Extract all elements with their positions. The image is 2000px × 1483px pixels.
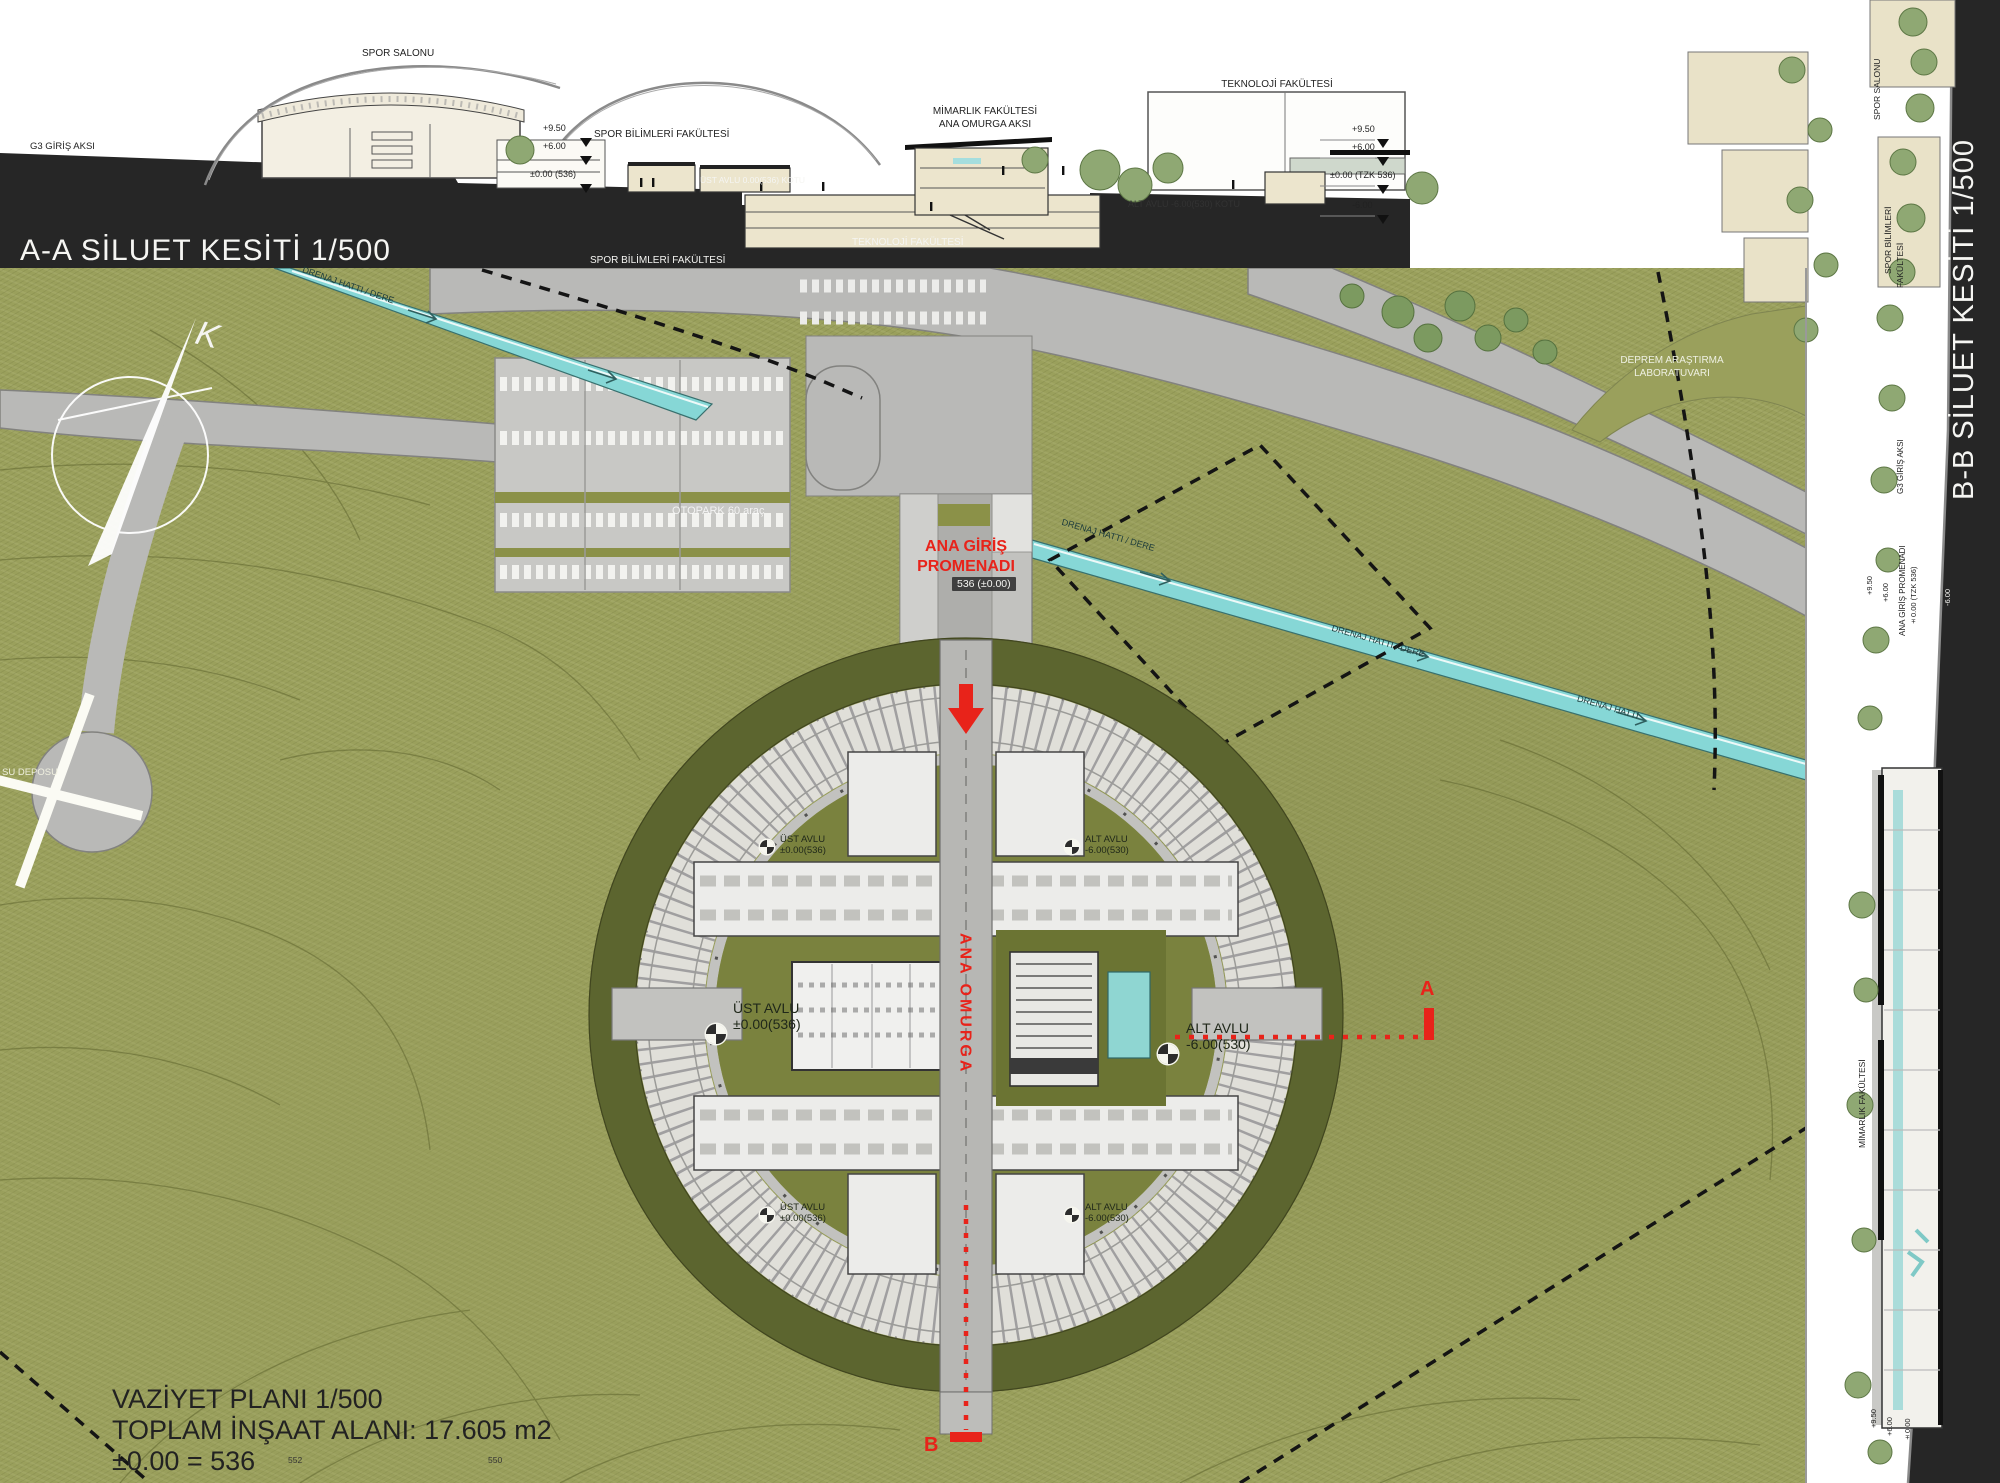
plan-teknoloji-label: TEKNOLOJİ FAKÜLTESİ [852, 237, 964, 249]
spor-salonu-label: SPOR SALONU [362, 48, 434, 60]
b-spor-salonu-label: SPOR SALONU [1873, 20, 1883, 120]
drawing-canvas [0, 0, 2000, 1483]
level-right-000: ±0.00 (TZK 536) [1330, 170, 1395, 180]
architectural-sheet: G3 GİRİŞ AKSI SPOR SALONU SPOR BİLİMLERİ… [0, 0, 2000, 1483]
courtyard-name: ÜST AVLU [780, 1202, 826, 1213]
su-deposu-label: SU DEPOSU [2, 768, 58, 779]
level-left-000: ±0.00 (536) [530, 169, 576, 179]
planter-strip [938, 504, 990, 526]
road-turnaround [806, 366, 880, 490]
courtyard-level: -6.00(530) [1085, 1213, 1129, 1224]
courtyard-label-lower-left: ÜST AVLU ±0.00(536) [780, 1202, 826, 1224]
level-icon [760, 1208, 774, 1222]
b-bottom-level-950: +9.50 [1870, 1382, 1879, 1428]
teknoloji-label: TEKNOLOJİ FAKÜLTESİ [1197, 79, 1357, 91]
ana-giris-label-2: PROMENADI [908, 558, 1024, 576]
b-tzk-label: ±0.00 (TZK 536) [1910, 516, 1919, 626]
deprem-label-1: DEPREM ARAŞTIRMA [1597, 355, 1747, 367]
courtyard-label-mid-left: ÜST AVLU ±0.00(536) [733, 1000, 801, 1032]
section-marker-b: B [924, 1434, 938, 1457]
level-icon [1065, 1208, 1079, 1222]
b-level-950: +9.50 [1866, 545, 1875, 595]
courtyard-level: -6.00(530) [1186, 1036, 1251, 1052]
b-bottom-level-600: +6.00 [1886, 1390, 1895, 1436]
ana-giris-level-badge: 536 (±0.00) [952, 577, 1016, 591]
section-b-title: B-B SİLUET KESİTİ 1/500 [1948, 140, 1981, 500]
b-spor-bilimleri-label-1: SPOR BİLİMLERİ [1884, 164, 1894, 274]
section-a-title: A-A SİLUET KESİTİ 1/500 [20, 234, 391, 269]
spor-bilimleri-label: SPOR BİLİMLERİ FAKÜLTESİ [594, 129, 729, 141]
courtyard-level: ±0.00(536) [733, 1016, 801, 1032]
courtyard-name: ÜST AVLU [780, 834, 826, 845]
otopark-label: OTOPARK 60 araç [672, 505, 765, 518]
courtyard-label-upper-left: ÜST AVLU ±0.00(536) [780, 834, 826, 856]
central-block [792, 962, 944, 1070]
alt-avlu-kotu-label: ALT AVLU -6.00(530) KOTU [1128, 199, 1240, 209]
level-icon [760, 840, 774, 854]
plan-spor-bilimleri-label: SPOR BİLİMLERİ FAKÜLTESİ [590, 255, 725, 267]
courtyard-name: ALT AVLU [1186, 1020, 1251, 1036]
plan-title-line2: TOPLAM İNŞAAT ALANI: 17.605 m2 [112, 1415, 552, 1446]
courtyard-label-lower-right: ALT AVLU -6.00(530) [1085, 1202, 1129, 1224]
courtyard-name: ALT AVLU [1085, 1202, 1129, 1213]
plan-title-block: VAZİYET PLANI 1/500 TOPLAM İNŞAAT ALANI:… [112, 1384, 552, 1477]
deprem-label-2: LABORATUVARI [1597, 368, 1747, 380]
level-right-600: +6.00 [1352, 142, 1375, 152]
courtyard-name: ALT AVLU [1085, 834, 1129, 845]
b-spor-bilimleri-label-2: FAKÜLTESİ [1896, 178, 1906, 288]
plan-title-line1: VAZİYET PLANI 1/500 [112, 1384, 552, 1415]
b-mimarlik-label: MİMARLIK FAKÜLTESİ [1858, 988, 1868, 1148]
b-bottom-level-000: ±0.00 [1904, 1396, 1913, 1442]
courtyard-label-mid-right: ALT AVLU -6.00(530) [1186, 1020, 1251, 1052]
ana-omurga-label: ANA OMURGA [955, 933, 973, 1074]
level-icon [1158, 1044, 1178, 1064]
b-level-600: +6.00 [1882, 552, 1891, 602]
courtyard-label-upper-right: ALT AVLU -6.00(530) [1085, 834, 1129, 856]
ust-avlu-kotu-label: ÜST AVLU 0.00(536) KOTU [700, 176, 805, 186]
level-icon [1065, 840, 1079, 854]
ana-giris-label-1: ANA GİRİŞ [916, 538, 1016, 556]
level-right-m600: -6.00 [1352, 200, 1373, 210]
mimarlik-label-1: MİMARLIK FAKÜLTESİ [925, 106, 1045, 118]
courtyard-name: ÜST AVLU [733, 1000, 801, 1016]
section-b-building [1882, 768, 1942, 1428]
level-right-950: +9.50 [1352, 124, 1375, 134]
level-left-950: +9.50 [543, 123, 566, 133]
mimarlik-label-2: ANA OMURGA AKSI [925, 119, 1045, 131]
pool [1108, 972, 1150, 1058]
courtyard-level: -6.00(530) [1085, 845, 1129, 856]
g3-axis-label: G3 GİRİŞ AKSI [30, 142, 95, 153]
b-level-m600: -6.00 [1944, 556, 1953, 606]
level-left-600: +6.00 [543, 141, 566, 151]
section-marker-a: A [1420, 978, 1434, 1001]
plan-title-line3: ±0.00 = 536 [112, 1446, 552, 1477]
level-icon [706, 1024, 726, 1044]
courtyard-level: ±0.00(536) [780, 1213, 826, 1224]
courtyard-level: ±0.00(536) [780, 845, 826, 856]
b-ana-giris-label: ANA GİRİŞ PROMENADI [1898, 486, 1907, 636]
b-g3-axis-label: G3 GİRİŞ AKSI [1896, 404, 1905, 494]
